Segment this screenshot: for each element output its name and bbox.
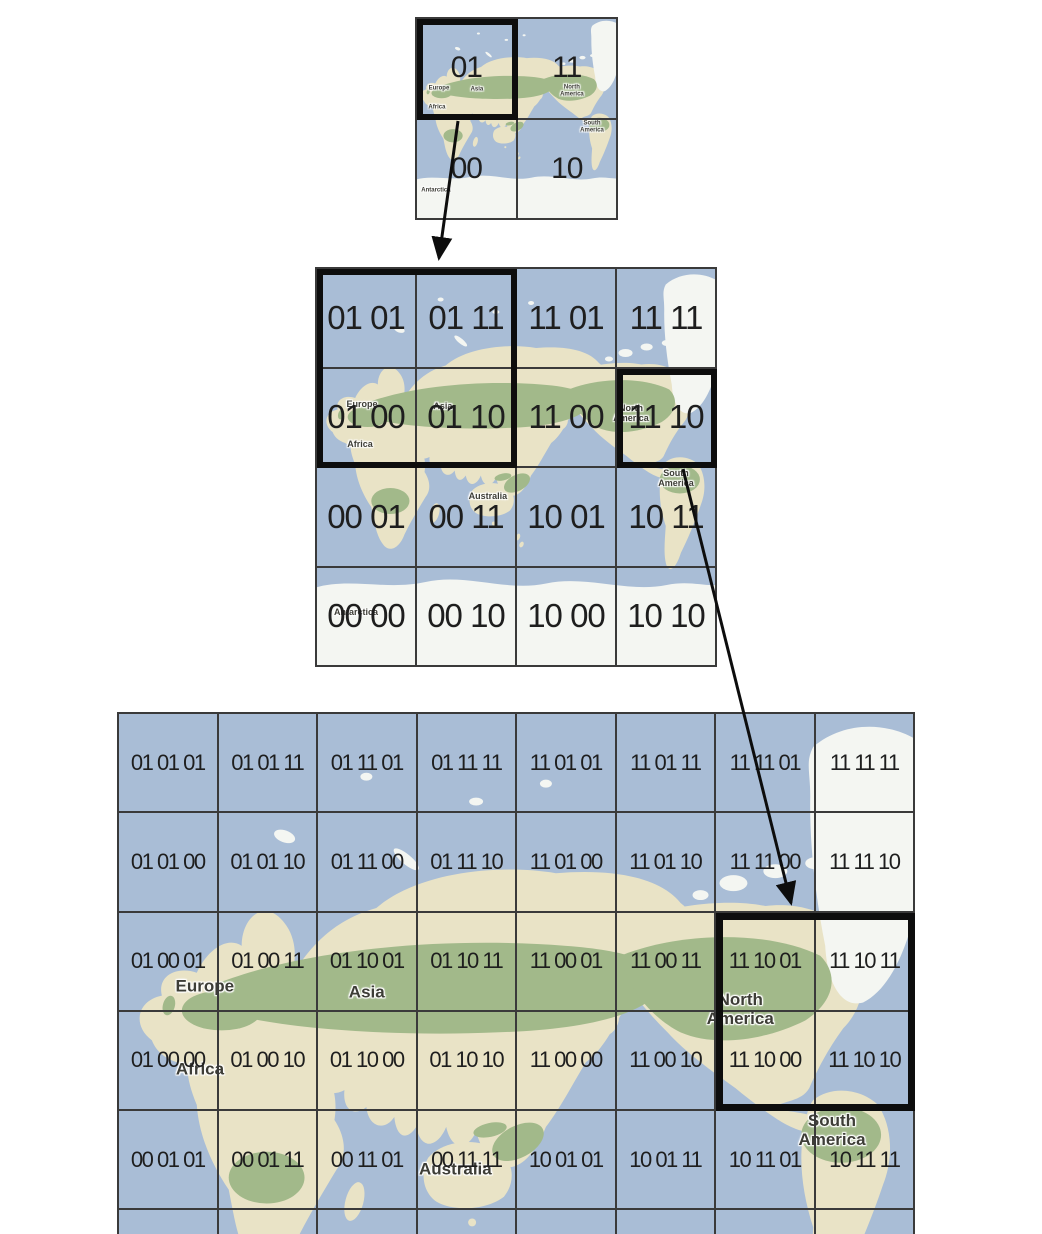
cell-code-label: 10 — [551, 152, 582, 186]
cell-code-label: 10 01 01 — [529, 1147, 603, 1173]
cell-code-label: 11 00 01 — [530, 948, 602, 974]
grid-cell-00-01: 00 01 — [317, 468, 417, 568]
grid-cell-11-00-00: 11 00 00 — [517, 1012, 617, 1111]
cell-code-label: 10 10 — [627, 597, 705, 635]
cell-code-label: 11 11 11 — [830, 750, 899, 776]
grid-cell — [816, 1210, 916, 1234]
cell-code-label: 01 01 11 — [231, 750, 303, 776]
grid-cell-00-11-01: 00 11 01 — [318, 1111, 418, 1210]
grid-cell-10-01-11: 10 01 11 — [617, 1111, 717, 1210]
cell-code-label: 01 11 01 — [331, 750, 403, 776]
cell-code-label: 11 00 10 — [629, 1047, 701, 1073]
grid-cell — [418, 1210, 518, 1234]
grid-cell-01-01-10: 01 01 10 — [219, 813, 319, 912]
cell-code-label: 01 00 11 — [231, 948, 303, 974]
world-map-level-2: EuropeAsiaAfricaAustraliaNorth AmericaSo… — [315, 267, 717, 667]
grid-cell-00-10: 00 10 — [417, 568, 517, 668]
cell-code-label: 01 10 10 — [429, 1047, 503, 1073]
grid-cell-00-01-01: 00 01 01 — [119, 1111, 219, 1210]
grid-cell — [517, 1210, 617, 1234]
grid-cell-01-00-01: 01 00 01 — [119, 913, 219, 1012]
cell-code-label: 11 01 — [528, 299, 603, 337]
cell-code-label: 01 01 01 — [131, 750, 205, 776]
grid-cell-11-01-11: 11 01 11 — [617, 714, 717, 813]
cell-code-label: 00 00 — [327, 597, 405, 635]
grid-cell-11-00-11: 11 00 11 — [617, 913, 717, 1012]
cell-code-label: 11 00 11 — [630, 948, 700, 974]
cell-code-label: 01 10 00 — [330, 1047, 404, 1073]
grid-cell-00-11: 00 11 — [417, 468, 517, 568]
highlight-box-01 — [417, 19, 518, 120]
cell-code-label: 01 10 11 — [430, 948, 502, 974]
cell-code-label: 10 01 — [527, 498, 605, 536]
cell-code-label: 00 11 01 — [331, 1147, 403, 1173]
cell-code-label: 11 11 10 — [829, 849, 899, 875]
cell-code-label: 00 01 — [327, 498, 405, 536]
grid-cell-00-00: 00 00 — [317, 568, 417, 668]
cell-code-label: 11 00 00 — [530, 1047, 602, 1073]
quadrant-grid-level-2: 01 0101 1111 0111 1101 0001 1011 0011 10… — [315, 267, 717, 667]
cell-code-label: 11 00 — [528, 398, 603, 436]
cell-code-label: 10 11 01 — [729, 1147, 801, 1173]
grid-cell-01-11-11: 01 11 11 — [418, 714, 518, 813]
cell-code-label: 01 11 10 — [430, 849, 502, 875]
grid-cell-00-11-11: 00 11 11 — [418, 1111, 518, 1210]
grid-cell-11-00-10: 11 00 10 — [617, 1012, 717, 1111]
cell-code-label: 10 11 11 — [829, 1147, 899, 1173]
grid-cell-11-11-00: 11 11 00 — [716, 813, 816, 912]
cell-code-label: 00 11 — [428, 498, 503, 536]
cell-code-label: 11 01 01 — [530, 750, 602, 776]
grid-cell-01-01-11: 01 01 11 — [219, 714, 319, 813]
cell-code-label: 01 01 10 — [230, 849, 304, 875]
cell-code-label: 11 01 10 — [629, 849, 701, 875]
cell-code-label: 00 — [451, 152, 482, 186]
world-map-level-3: EuropeAsiaAfricaAustraliaNorth AmericaSo… — [117, 712, 915, 1234]
cell-code-label: 10 00 — [527, 597, 605, 635]
grid-cell-11-00: 11 00 — [517, 369, 617, 469]
grid-cell-01-10-11: 01 10 11 — [418, 913, 518, 1012]
grid-cell-00-01-11: 00 01 11 — [219, 1111, 319, 1210]
grid-cell-10-00: 10 00 — [517, 568, 617, 668]
grid-cell-10-01: 10 01 — [517, 468, 617, 568]
cell-code-label: 11 01 00 — [530, 849, 602, 875]
grid-cell-11-01-10: 11 01 10 — [617, 813, 717, 912]
cell-code-label: 00 01 01 — [131, 1147, 205, 1173]
cell-code-label: 01 00 10 — [230, 1047, 304, 1073]
grid-cell — [318, 1210, 418, 1234]
grid-cell — [119, 1210, 219, 1234]
grid-cell-11-11: 11 11 — [617, 269, 717, 369]
grid-cell-10-11: 10 11 — [617, 468, 717, 568]
cell-code-label: 01 00 00 — [131, 1047, 205, 1073]
grid-cell-01-01-01: 01 01 01 — [119, 714, 219, 813]
highlight-box-11-10 — [617, 369, 717, 469]
cell-code-label: 10 01 11 — [629, 1147, 701, 1173]
grid-cell-01-11-01: 01 11 01 — [318, 714, 418, 813]
grid-cell-01-11-00: 01 11 00 — [318, 813, 418, 912]
grid-cell — [617, 1210, 717, 1234]
quadrant-grid-level-3: 01 01 0101 01 1101 11 0101 11 1111 01 01… — [117, 712, 915, 1234]
grid-cell-11-11-10: 11 11 10 — [816, 813, 916, 912]
highlight-box-11-10 — [716, 913, 915, 1112]
cell-code-label: 11 — [552, 51, 581, 85]
grid-cell-01-10-00: 01 10 00 — [318, 1012, 418, 1111]
cell-code-label: 01 11 00 — [331, 849, 403, 875]
grid-cell-01-10-10: 01 10 10 — [418, 1012, 518, 1111]
grid-cell-11: 11 — [518, 19, 619, 120]
cell-code-label: 11 01 11 — [630, 750, 700, 776]
cell-code-label: 00 10 — [427, 597, 505, 635]
grid-cell-11-11-11: 11 11 11 — [816, 714, 916, 813]
grid-cell-11-11-01: 11 11 01 — [716, 714, 816, 813]
highlight-box-01 — [317, 269, 517, 468]
grid-cell — [716, 1210, 816, 1234]
grid-cell-01-00-11: 01 00 11 — [219, 913, 319, 1012]
grid-cell-01-11-10: 01 11 10 — [418, 813, 518, 912]
grid-cell-10-11-01: 10 11 01 — [716, 1111, 816, 1210]
cell-code-label: 11 11 01 — [730, 750, 800, 776]
cell-code-label: 00 01 11 — [231, 1147, 303, 1173]
grid-cell-11-00-01: 11 00 01 — [517, 913, 617, 1012]
cell-code-label: 01 01 00 — [131, 849, 205, 875]
grid-cell-10-11-11: 10 11 11 — [816, 1111, 916, 1210]
grid-cell-10-01-01: 10 01 01 — [517, 1111, 617, 1210]
grid-cell-01-00-10: 01 00 10 — [219, 1012, 319, 1111]
grid-cell-01-00-00: 01 00 00 — [119, 1012, 219, 1111]
cell-code-label: 01 11 11 — [431, 750, 501, 776]
cell-code-label: 01 10 01 — [330, 948, 404, 974]
cell-code-label: 10 11 — [628, 498, 703, 536]
grid-cell-11-01-00: 11 01 00 — [517, 813, 617, 912]
world-map-level-1: EuropeAsiaAfricaNorth AmericaSouth Ameri… — [415, 17, 618, 220]
grid-cell-00: 00 — [417, 120, 518, 221]
grid-cell — [219, 1210, 319, 1234]
cell-code-label: 11 11 — [630, 299, 703, 337]
grid-cell-11-01: 11 01 — [517, 269, 617, 369]
grid-cell-01-10-01: 01 10 01 — [318, 913, 418, 1012]
grid-cell-10-10: 10 10 — [617, 568, 717, 668]
grid-cell-11-01-01: 11 01 01 — [517, 714, 617, 813]
cell-code-label: 01 00 01 — [131, 948, 205, 974]
cell-code-label: 00 11 11 — [431, 1147, 501, 1173]
cell-code-label: 11 11 00 — [730, 849, 800, 875]
grid-cell-01-01-00: 01 01 00 — [119, 813, 219, 912]
quadrant-grid-level-1: 01110010 — [415, 17, 618, 220]
grid-cell-10: 10 — [518, 120, 619, 221]
